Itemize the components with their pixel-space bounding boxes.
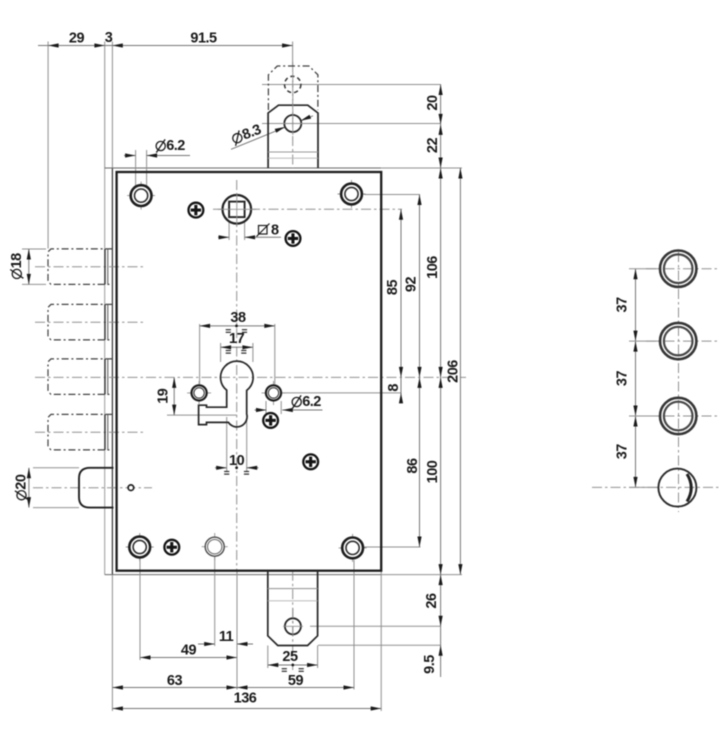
- svg-text:100: 100: [425, 460, 441, 483]
- svg-text:37: 37: [615, 444, 631, 460]
- svg-text:25: 25: [282, 649, 298, 665]
- svg-text:19: 19: [156, 388, 172, 404]
- svg-text:136: 136: [234, 691, 257, 707]
- svg-text:206: 206: [445, 360, 461, 383]
- svg-text:85: 85: [385, 280, 401, 296]
- svg-text:106: 106: [425, 256, 441, 279]
- svg-text:20: 20: [425, 95, 441, 111]
- svg-text:49: 49: [181, 643, 197, 659]
- svg-text:22: 22: [425, 138, 441, 154]
- svg-text:20: 20: [14, 474, 30, 490]
- svg-text:86: 86: [405, 458, 421, 474]
- svg-text:17: 17: [229, 331, 245, 347]
- svg-text:26: 26: [424, 593, 440, 609]
- svg-text:92: 92: [403, 277, 419, 293]
- svg-text:29: 29: [69, 31, 85, 47]
- svg-text:9.5: 9.5: [422, 655, 438, 674]
- svg-text:6.2: 6.2: [166, 138, 185, 154]
- svg-text:38: 38: [230, 310, 246, 326]
- svg-text:59: 59: [288, 673, 304, 689]
- svg-text:37: 37: [615, 297, 631, 313]
- svg-text:3: 3: [105, 30, 113, 46]
- svg-text:6.2: 6.2: [302, 394, 321, 410]
- svg-text:8: 8: [271, 222, 279, 238]
- svg-text:91.5: 91.5: [190, 31, 217, 47]
- svg-text:63: 63: [167, 673, 183, 689]
- svg-text:37: 37: [615, 371, 631, 387]
- svg-text:11: 11: [219, 629, 234, 645]
- svg-text:8: 8: [386, 384, 402, 392]
- svg-text:18: 18: [9, 253, 25, 269]
